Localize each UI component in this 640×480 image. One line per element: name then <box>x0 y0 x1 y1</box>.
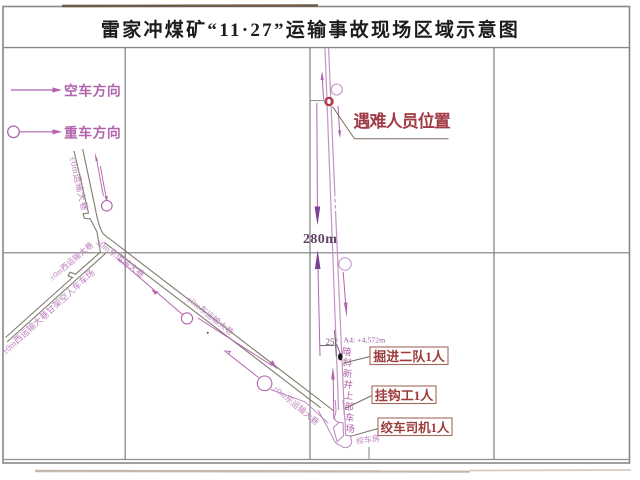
svg-text:绞车房: 绞车房 <box>355 433 380 446</box>
svg-text:A4: +4,572m: A4: +4,572m <box>344 336 386 345</box>
svg-text:车: 车 <box>344 411 355 424</box>
svg-text:遇难人员位置: 遇难人员位置 <box>354 111 451 131</box>
svg-text:挂钩工1人: 挂钩工1人 <box>375 388 435 403</box>
svg-text:斜: 斜 <box>342 356 354 369</box>
svg-text:±0m东运输大巷: ±0m东运输大巷 <box>185 294 236 338</box>
svg-text:25°: 25° <box>326 337 339 347</box>
svg-text:掘进二队1人: 掘进二队1人 <box>373 349 446 364</box>
svg-text:场: 场 <box>345 423 356 435</box>
svg-text:绞车司机1人: 绞车司机1人 <box>381 420 450 435</box>
svg-text:新: 新 <box>342 367 354 380</box>
svg-text:空车方向: 空车方向 <box>64 83 121 99</box>
svg-text:重车方向: 重车方向 <box>64 124 121 140</box>
svg-text:暗: 暗 <box>341 345 353 358</box>
svg-text:±0m东运输大巷: ±0m东运输大巷 <box>94 237 147 280</box>
svg-text:井: 井 <box>343 378 354 391</box>
svg-text:280m: 280m <box>303 232 337 247</box>
svg-text:±0m西运输大巷甘架空人车车场: ±0m西运输大巷甘架空人车车场 <box>0 267 97 357</box>
svg-text:±0m运输大巷: ±0m运输大巷 <box>68 155 91 212</box>
svg-text:雷家冲煤矿“11·27”运输事故现场区域示意图: 雷家冲煤矿“11·27”运输事故现场区域示意图 <box>101 18 520 41</box>
svg-text:上: 上 <box>343 390 354 402</box>
